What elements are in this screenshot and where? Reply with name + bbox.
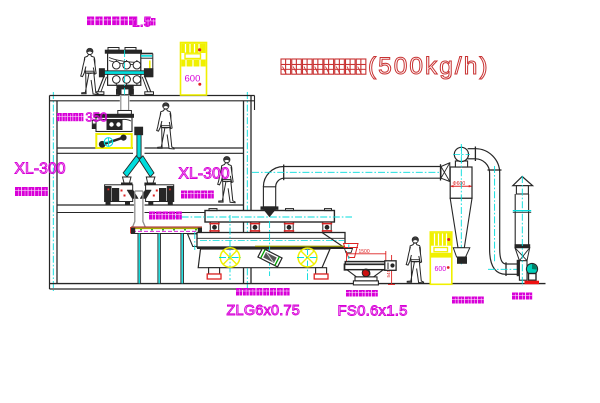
svg-text:FS0.6x1.5: FS0.6x1.5: [338, 303, 408, 320]
svg-text:600: 600: [435, 266, 447, 273]
svg-text:Φ600: Φ600: [453, 181, 466, 187]
svg-text:600: 600: [185, 74, 201, 85]
svg-text:(500kg/h): (500kg/h): [368, 53, 490, 80]
svg-text:ZLG6x0.75: ZLG6x0.75: [227, 303, 301, 319]
svg-text:XL-300: XL-300: [15, 161, 66, 178]
svg-text:1500: 1500: [359, 249, 370, 255]
svg-text:XL-300: XL-300: [179, 166, 230, 183]
svg-text:350: 350: [86, 110, 108, 125]
